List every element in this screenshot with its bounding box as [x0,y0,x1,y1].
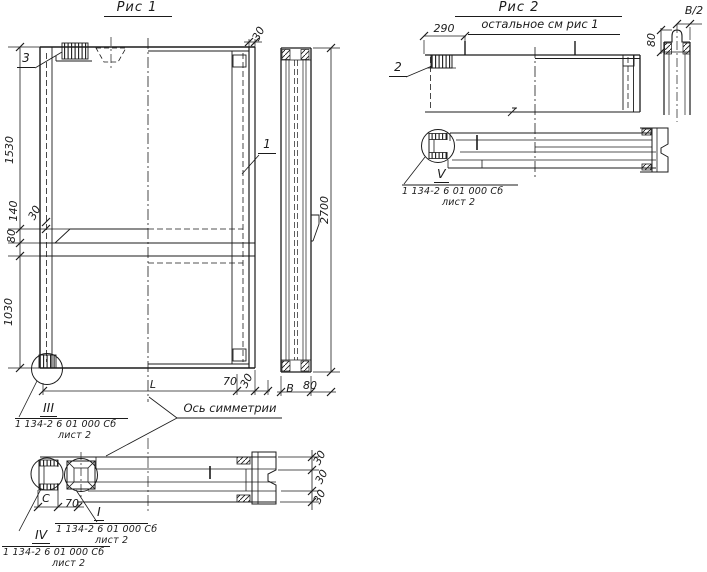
callout-1: 1 [258,138,276,154]
fig2-side-section [657,20,702,122]
detail-iv-sheet: лист 2 [52,559,85,570]
fig1-front-view [32,37,256,402]
detail-i-sheet: лист 2 [95,536,128,547]
dim-290: 290 [426,23,462,36]
dim-80-side: 80 [300,380,320,393]
dim-1030: 1030 [3,292,15,332]
fig1-side-view [281,48,319,372]
dim-140: 140 [8,198,20,224]
dim-L: L [144,379,162,392]
dim-C: С [39,493,53,506]
detail-v-sheet: лист 2 [442,198,475,209]
axis-of-symmetry-label: Ось симметрии [180,402,280,415]
drawing-linework [0,0,707,572]
dim-80-left: 80 [6,226,18,246]
detail-ref-iv: IV [32,528,50,544]
callout-3: 3 [17,52,35,68]
detail-iii-sheet: лист 2 [58,431,91,442]
dim-B: В [282,383,298,396]
dim-2700: 2700 [319,187,331,233]
dim-80-fig2: 80 [646,30,658,50]
detail-ref-v: V [434,167,449,183]
fig2-title: Рис 2 [469,1,569,16]
callout-2: 2 [389,61,407,77]
drawing-sheet: Рис 1 1530 140 30 80 1030 30 2700 1 3 L … [0,0,707,572]
fig2-subtitle: остальное см рис 1 [462,18,618,31]
dim-1530: 1530 [4,130,16,170]
dim-70-section: 70 [63,498,81,511]
fig1-title: Рис 1 [102,1,172,16]
detail-ref-iii: III [40,401,57,417]
detail-ref-i: I [94,505,104,521]
dim-B-half: В/2 [680,5,707,18]
